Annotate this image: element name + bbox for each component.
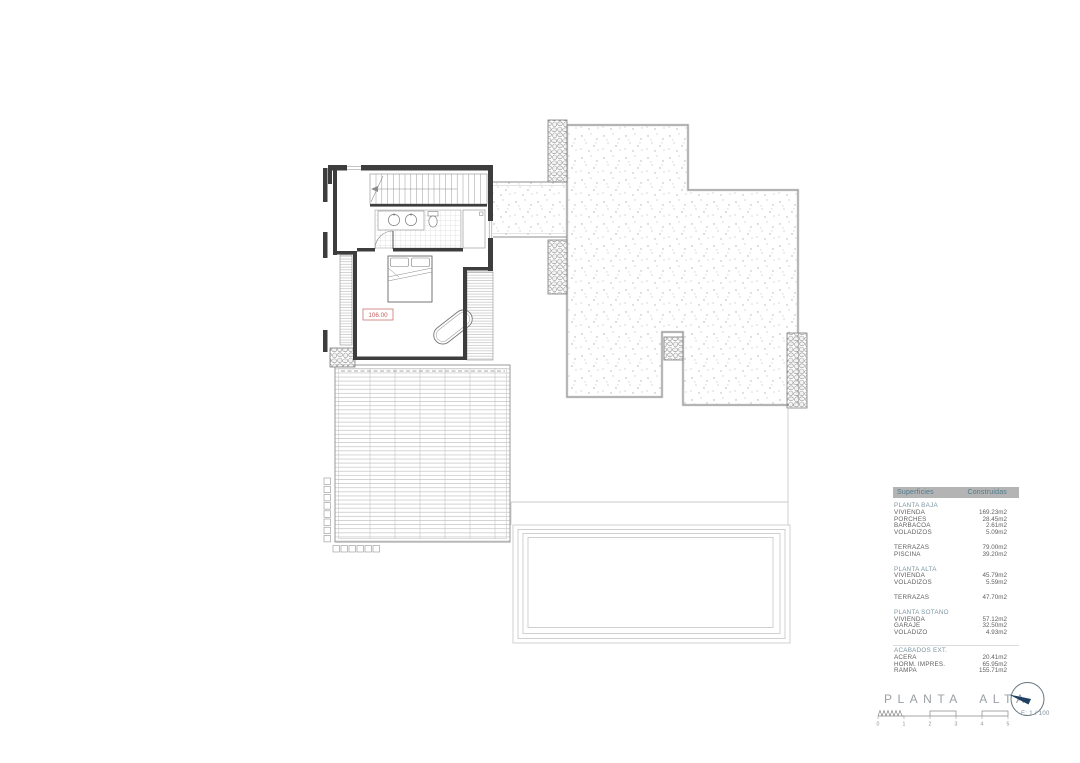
surfaces-table: Superficies Construidas PLANTA BAJA VIVI… — [893, 487, 1019, 675]
table-row: PISCINA39.20m2 — [893, 552, 1019, 559]
pool-outline — [511, 408, 790, 643]
section-planta-alta: PLANTA ALTA VIVIENDA45.79m2 VOLADIZOS5.5… — [893, 567, 1019, 587]
house-upper-floor: 106.00 — [323, 165, 493, 360]
scale-label: 3 — [955, 722, 958, 728]
table-row: VOLADIZO4.93m2 — [893, 630, 1019, 637]
pillow — [412, 258, 430, 267]
upper-terrace — [567, 125, 798, 405]
surfaces-table-header: Superficies Construidas — [893, 487, 1019, 498]
section-planta-baja: PLANTA BAJA VIVIENDA169.23m2 PORCHES28.4… — [893, 503, 1019, 537]
table-row: VOLADIZOS5.09m2 — [893, 530, 1019, 537]
scale-label: 4 — [981, 722, 984, 728]
table-row: VOLADIZOS5.59m2 — [893, 580, 1019, 587]
staircase — [370, 174, 487, 204]
section-terrazas-alta: TERRAZAS47.70m2 — [893, 595, 1019, 602]
table-row: RAMPA155.71m2 — [893, 668, 1019, 675]
sink — [388, 214, 399, 225]
pillow — [391, 258, 409, 267]
terrace-walkway — [493, 182, 567, 237]
sink — [405, 214, 416, 225]
column-header-superficies: Superficies — [897, 487, 934, 498]
scale-label: 1 — [903, 722, 906, 728]
table-row: TERRAZAS47.70m2 — [893, 595, 1019, 602]
scale-ratio-text: E: 1 / 100 — [1021, 711, 1050, 717]
deck-terrace — [324, 348, 510, 552]
floor-plan-drawing: 106.00 — [315, 110, 815, 660]
toilet — [428, 212, 438, 217]
graphic-scale-bar: 0 1 2 3 4 5 — [874, 706, 1024, 729]
floor-plan-sheet: 106.00 Superficies Construidas PLANTA BA… — [0, 0, 1080, 763]
scale-label: 5 — [1007, 722, 1010, 728]
scale-label: 2 — [929, 722, 932, 728]
west-overhang — [340, 255, 352, 345]
scale-label: 0 — [877, 722, 880, 728]
vanity-counter — [378, 211, 424, 230]
section-planta-sotano: PLANTA SOTANO VIVIENDA57.12m2 GARAJE32.5… — [893, 610, 1019, 637]
scale-zigzag — [878, 711, 904, 717]
elevation-label: 106.00 — [368, 312, 388, 319]
bed — [388, 256, 432, 302]
column-header-construidas: Construidas — [967, 487, 1007, 498]
elevation-marker: 106.00 — [363, 309, 393, 320]
section-acabados-ext: ACABADOS EXT. ACERA20.41m2 HORM. IMPRES.… — [893, 645, 1019, 675]
bathroom — [375, 210, 485, 249]
section-terrazas-piscina: TERRAZAS79.00m2 PISCINA39.20m2 — [893, 545, 1019, 559]
